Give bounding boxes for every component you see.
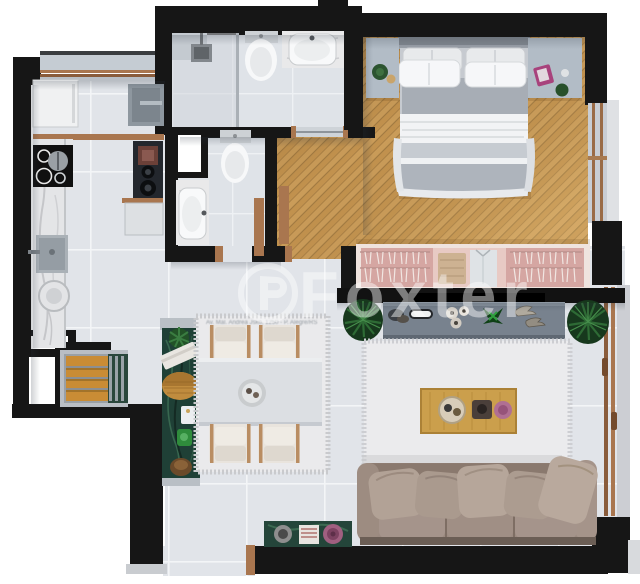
svg-text:Foxter: Foxter [299,258,534,331]
